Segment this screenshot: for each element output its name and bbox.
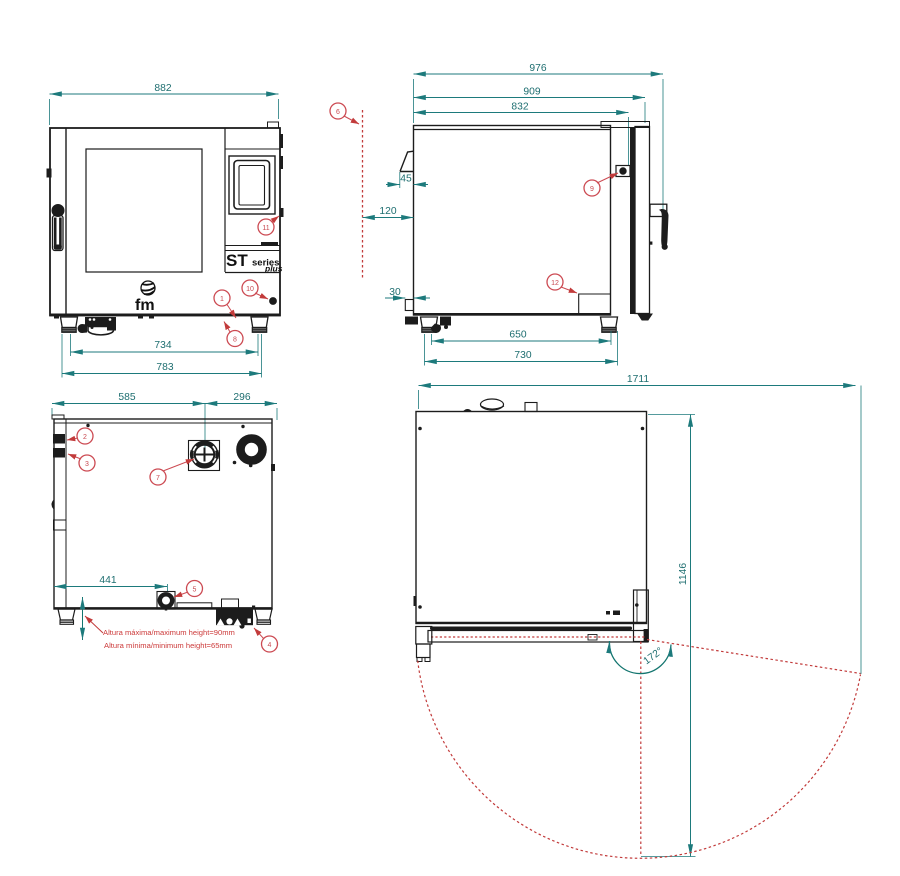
svg-text:8: 8: [233, 337, 237, 344]
svg-text:441: 441: [99, 575, 116, 586]
svg-text:1146: 1146: [678, 563, 689, 585]
svg-text:734: 734: [154, 340, 171, 351]
svg-text:1: 1: [220, 296, 224, 303]
svg-text:9: 9: [590, 186, 594, 193]
svg-text:832: 832: [511, 102, 528, 113]
svg-text:12: 12: [551, 280, 559, 287]
svg-text:296: 296: [233, 392, 250, 403]
svg-text:2: 2: [83, 434, 87, 441]
svg-text:7: 7: [156, 475, 160, 482]
svg-text:Altura máxima/maximum height=9: Altura máxima/maximum height=90mm: [103, 628, 235, 637]
svg-text:fm: fm: [135, 297, 155, 314]
svg-text:3: 3: [85, 461, 89, 468]
svg-text:650: 650: [509, 330, 526, 341]
svg-text:45: 45: [400, 174, 412, 185]
svg-text:5: 5: [193, 587, 197, 594]
svg-text:882: 882: [154, 83, 171, 94]
svg-text:585: 585: [118, 392, 135, 403]
svg-text:30: 30: [389, 287, 401, 298]
svg-text:6: 6: [336, 109, 340, 116]
svg-text:Altura mínima/minimum height=6: Altura mínima/minimum height=65mm: [104, 641, 232, 650]
svg-text:ST: ST: [226, 251, 248, 270]
svg-text:976: 976: [529, 63, 546, 74]
svg-text:783: 783: [156, 362, 173, 373]
svg-text:10: 10: [246, 286, 254, 293]
svg-text:909: 909: [523, 87, 540, 98]
svg-text:4: 4: [268, 642, 272, 649]
svg-text:1711: 1711: [627, 374, 649, 385]
svg-text:730: 730: [514, 350, 531, 361]
svg-text:11: 11: [262, 225, 269, 232]
svg-text:120: 120: [379, 206, 396, 217]
